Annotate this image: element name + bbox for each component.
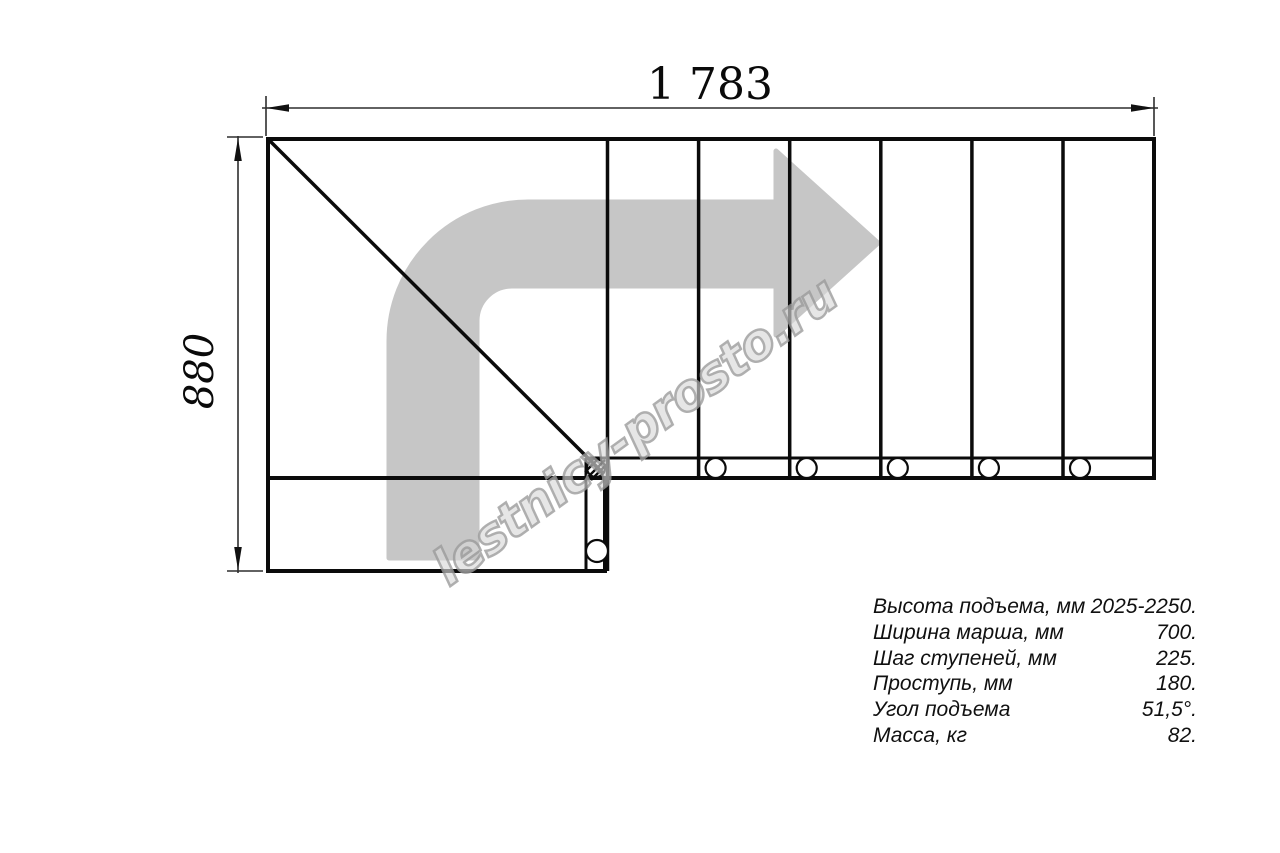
dim-arrow-up-icon — [234, 138, 242, 161]
spec-table: Высота подъема, мм 2025-2250. Ширина мар… — [873, 594, 1197, 749]
staircase-drawing-page: 1 783 880 lestnicy-prosto.ru Высота подъ… — [0, 0, 1280, 853]
spec-row-height: Высота подъема, мм 2025-2250. — [873, 594, 1197, 620]
spec-value: 51,5°. — [1142, 697, 1197, 723]
bolt-hole — [797, 458, 817, 478]
direction-arrow-icon — [389, 151, 878, 558]
spec-row-tread: Проступь, мм 180. — [873, 671, 1197, 697]
spec-label: Ширина марша, мм — [873, 620, 1064, 646]
bolt-hole — [1070, 458, 1090, 478]
spec-row-flight-width: Ширина марша, мм 700. — [873, 620, 1197, 646]
spec-label: Шаг ступеней, мм — [873, 646, 1057, 672]
spec-row-angle: Угол подъема 51,5°. — [873, 697, 1197, 723]
bolt-hole — [706, 458, 726, 478]
spec-row-step-pitch: Шаг ступеней, мм 225. — [873, 646, 1197, 672]
left-dimension-value: 880 — [177, 333, 223, 409]
bolt-hole-entry — [586, 540, 608, 562]
spec-label: Высота подъема, мм — [873, 594, 1085, 620]
dim-arrow-left-icon — [266, 104, 289, 112]
spec-value: 2025-2250. — [1091, 594, 1197, 620]
spec-value: 180. — [1156, 671, 1197, 697]
dim-arrow-down-icon — [234, 547, 242, 570]
spec-value: 700. — [1156, 620, 1197, 646]
dim-arrow-right-icon — [1131, 104, 1154, 112]
spec-label: Проступь, мм — [873, 671, 1013, 697]
bolt-hole — [979, 458, 999, 478]
spec-label: Масса, кг — [873, 723, 967, 749]
spec-label: Угол подъема — [873, 697, 1010, 723]
spec-value: 82. — [1168, 723, 1197, 749]
spec-value: 225. — [1156, 646, 1197, 672]
spec-row-mass: Масса, кг 82. — [873, 723, 1197, 749]
bolt-hole — [888, 458, 908, 478]
top-dimension-value: 1 783 — [647, 59, 773, 110]
